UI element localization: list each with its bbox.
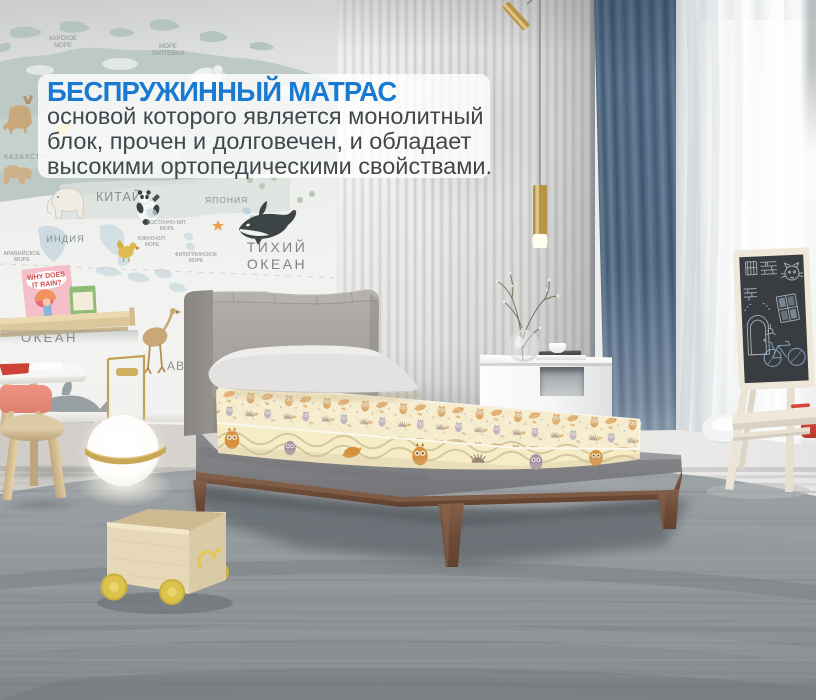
svg-text:ИНДИЯ: ИНДИЯ xyxy=(46,234,85,245)
svg-text:АРАВИЙСКОЕ: АРАВИЙСКОЕ xyxy=(3,249,41,257)
svg-text:ОКЕАН: ОКЕАН xyxy=(247,256,307,272)
svg-text:МОРЕ: МОРЕ xyxy=(160,226,175,232)
svg-text:ТИХИЙ: ТИХИЙ xyxy=(247,238,308,255)
svg-text:КИТАЙ: КИТАЙ xyxy=(96,189,142,204)
svg-text:МОРЕ: МОРЕ xyxy=(145,242,160,248)
svg-text:ЛАПТЕВЫХ: ЛАПТЕВЫХ xyxy=(151,51,184,57)
svg-text:МОРЕ: МОРЕ xyxy=(54,43,72,49)
svg-text:КАРСКОЕ: КАРСКОЕ xyxy=(49,36,77,42)
svg-text:ЯПОНИЯ: ЯПОНИЯ xyxy=(205,195,248,205)
svg-text:МОРЕ: МОРЕ xyxy=(189,258,204,264)
svg-text:МОРЕ: МОРЕ xyxy=(159,44,177,50)
